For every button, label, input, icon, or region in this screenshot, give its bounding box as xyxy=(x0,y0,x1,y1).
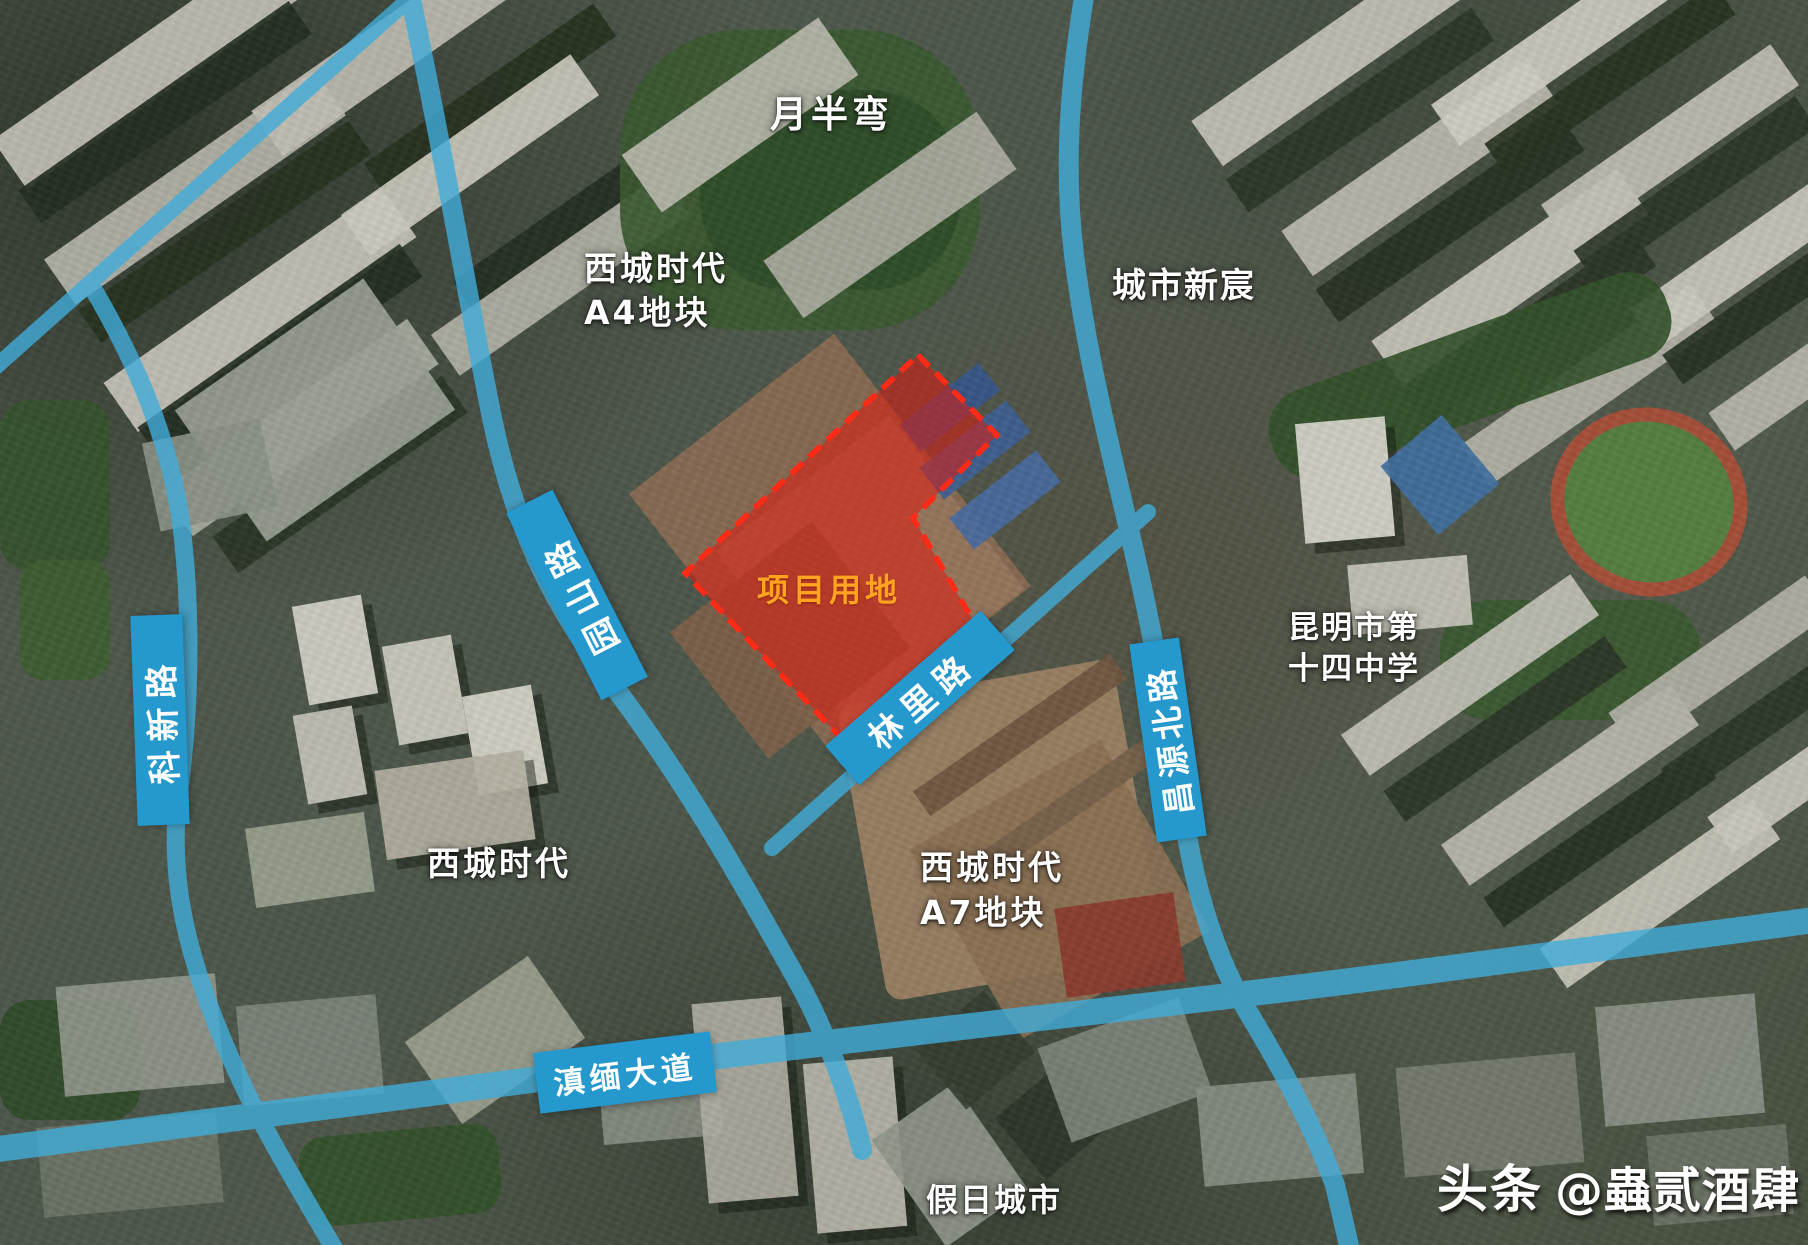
road-label-kexin-text: 科新路 xyxy=(133,655,186,786)
place-label-kunming-no14-school: 昆明市第 十四中学 xyxy=(1288,608,1420,690)
place-label-xicheng-a4-line2: A4地块 xyxy=(584,291,728,335)
watermark-handle: @蟲贰酒肆 xyxy=(1555,1151,1800,1221)
roads-and-boundary-layer xyxy=(0,0,1808,1245)
road-label-dianmian-text: 滇缅大道 xyxy=(551,1041,699,1103)
place-label-xicheng-a4-line1: 西城时代 xyxy=(584,247,728,291)
road-dianmian-line xyxy=(0,920,1808,1150)
watermark: 头条 @蟲贰酒肆 xyxy=(1437,1148,1800,1222)
place-label-xicheng-a4: 西城时代 A4地块 xyxy=(584,247,728,335)
place-label-chengshi-xinchen: 城市新宸 xyxy=(1112,264,1256,308)
place-label-school-line2: 十四中学 xyxy=(1288,649,1420,690)
road-kexin-diagonal-line xyxy=(0,0,425,372)
place-label-xicheng-a7-line1: 西城时代 xyxy=(920,845,1064,890)
place-label-yuebanwan: 月半弯 xyxy=(770,91,893,139)
place-label-xicheng-west: 西城时代 xyxy=(427,843,571,886)
road-label-kexin: 科新路 xyxy=(130,614,189,826)
satellite-map: 园山路 科新路 昌源北路 林里路 滇缅大道 月半弯 西城时代 A4地块 城市新宸… xyxy=(0,0,1808,1245)
watermark-brand: 头条 xyxy=(1437,1148,1543,1222)
place-label-school-line1: 昆明市第 xyxy=(1288,608,1420,649)
place-label-xicheng-a7: 西城时代 A7地块 xyxy=(920,845,1064,935)
place-label-xicheng-a7-line2: A7地块 xyxy=(920,890,1064,935)
place-label-jiari-chengshi: 假日城市 xyxy=(926,1180,1062,1222)
project-area-label: 项目用地 xyxy=(757,570,901,612)
